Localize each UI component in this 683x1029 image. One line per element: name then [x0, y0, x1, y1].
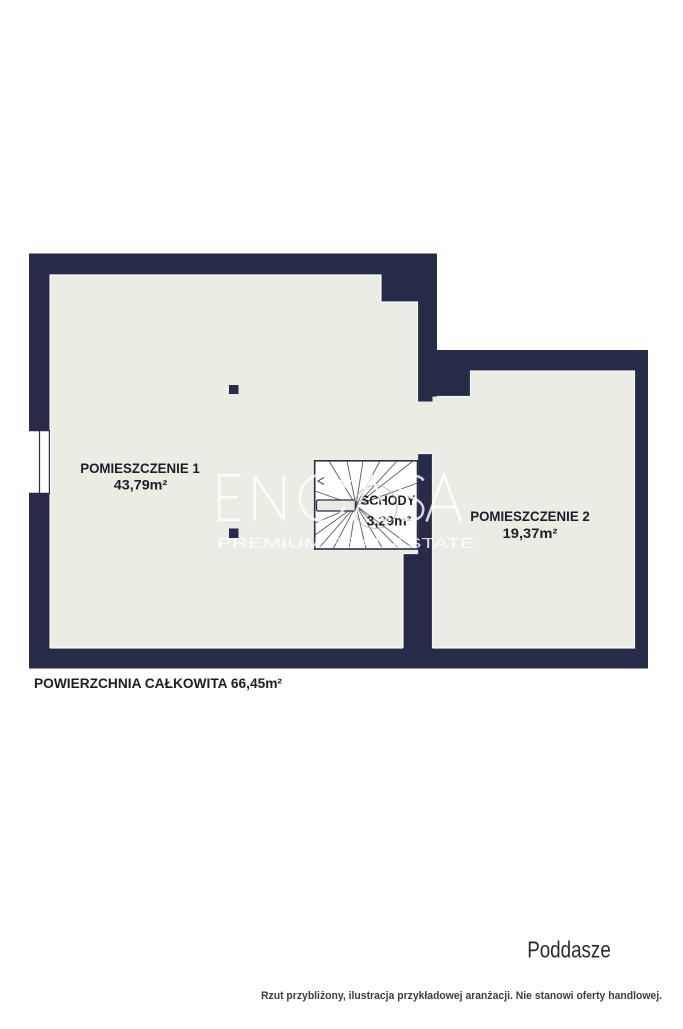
svg-text:POMIESZCZENIE 2: POMIESZCZENIE 2	[470, 508, 590, 524]
svg-text:43,79m²: 43,79m²	[114, 477, 168, 493]
svg-text:Rzut przybliżony, ilustracja p: Rzut przybliżony, ilustracja przykładowe…	[261, 990, 662, 1002]
svg-text:19,37m²: 19,37m²	[503, 525, 558, 541]
svg-text:Poddasze: Poddasze	[527, 937, 611, 963]
svg-text:POMIESZCZENIE 1: POMIESZCZENIE 1	[80, 460, 200, 476]
svg-text:PREMIUM REAL ESTATE: PREMIUM REAL ESTATE	[217, 536, 475, 552]
svg-text:POWIERZCHNIA CAŁKOWITA 66,45m²: POWIERZCHNIA CAŁKOWITA 66,45m²	[34, 676, 283, 691]
